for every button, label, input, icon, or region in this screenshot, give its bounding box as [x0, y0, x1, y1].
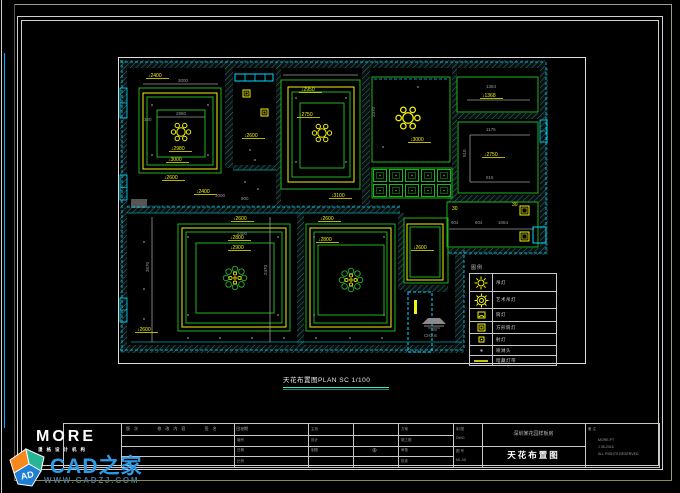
wall-hatch — [455, 113, 548, 119]
wall-hatch — [447, 248, 548, 255]
dim-label: 2980 — [176, 111, 187, 116]
downlight-dot — [395, 190, 397, 192]
legend-row: 吊灯 — [470, 274, 556, 292]
tb-label: 制图 — [311, 448, 318, 453]
dim-label: 1064 — [498, 220, 509, 225]
downlight-dot — [283, 337, 285, 339]
wall-hatch — [297, 213, 304, 345]
ceiling-frame — [447, 202, 538, 247]
legend-row: 筒灯 — [470, 309, 556, 322]
downlight-dot — [443, 190, 445, 192]
ceiling-height-symbol — [420, 316, 448, 332]
wall-hatch — [127, 205, 400, 213]
remark-line: J 08-2016 — [598, 445, 614, 450]
plan-title-underline — [283, 387, 389, 388]
downlight-dot — [383, 236, 385, 238]
ceiling-frame — [410, 227, 440, 277]
tb-label: 设计 — [311, 438, 318, 443]
project-name: 深圳某花园样板房 — [482, 424, 585, 445]
dim-label-vertical: 2470 — [371, 106, 376, 117]
downlight-dot — [315, 337, 317, 339]
tb-stamp-symbol: ⊕ — [372, 448, 377, 456]
spotlight-icon — [470, 334, 493, 345]
ceiling-frame — [457, 77, 538, 112]
downlight-dot — [411, 190, 413, 192]
downlight-dot — [277, 236, 279, 238]
chandelier — [312, 124, 331, 141]
dim-label: 320 — [144, 117, 152, 122]
title-block-divider — [585, 424, 586, 467]
wall-hatch — [398, 213, 404, 290]
wall-hatch — [455, 252, 464, 345]
plan-title-underline2 — [283, 389, 389, 390]
downlight-dot — [207, 104, 209, 106]
downlight-dot — [313, 314, 315, 316]
tb-sheetno-label: 图 号 — [456, 449, 464, 454]
downlight-dot — [381, 337, 383, 339]
lamp-square — [520, 206, 529, 215]
dim-label: 3000 — [178, 78, 189, 83]
downlight-dot — [382, 146, 384, 148]
legend-header: 图例 — [471, 264, 483, 271]
sheet-border-left — [14, 4, 15, 481]
downlight-dot — [219, 337, 221, 339]
downlight-dot — [411, 175, 413, 177]
dim-label: 904 — [451, 220, 459, 225]
legend-row: 艺术吊灯 — [470, 292, 556, 309]
legend-label: 射灯 — [493, 337, 506, 343]
dim-label-vertical: 3670 — [145, 261, 150, 272]
downlight-dot — [295, 97, 297, 99]
flower-chandelier — [339, 268, 363, 292]
downlight-dot — [187, 337, 189, 339]
downlight-dot — [313, 236, 315, 238]
screen-edge-line — [1, 0, 2, 493]
legend-label: 艺术吊灯 — [493, 297, 516, 303]
lamp-square — [522, 208, 527, 213]
title-block-row-line — [121, 456, 453, 457]
remark-line: MORE-PT — [598, 438, 614, 443]
plan-title: 天花布置图PLAN SC 1/100 — [283, 374, 370, 384]
downlight-dot — [249, 149, 251, 151]
art-chandelier-icon — [470, 292, 493, 308]
title-block-row-line — [121, 435, 453, 436]
lamp-square — [245, 92, 248, 95]
downlight-dot — [151, 104, 153, 106]
ceiling-frame — [292, 92, 350, 177]
wall-hatch — [120, 60, 127, 352]
revision-header: 版次 修改内容 签名 日期 — [126, 427, 252, 432]
remark-label: 备 注 — [588, 427, 596, 432]
pendant-lamp-icon — [470, 274, 493, 291]
dim-label: 30 — [452, 206, 458, 212]
sheet-border-right — [671, 4, 672, 481]
tb-label: 批准 — [401, 459, 408, 464]
downlight-dot — [295, 161, 297, 163]
ceiling-frame — [281, 80, 360, 189]
flower-chandelier — [223, 266, 247, 290]
legend-row: 喷淋头 — [470, 346, 556, 356]
ceiling-frame — [318, 245, 384, 315]
dim-label: 3000 — [215, 193, 226, 198]
ceiling-frame — [407, 224, 443, 280]
downlight-dot — [187, 314, 189, 316]
dim-label-vertical: 910 — [462, 149, 467, 157]
wall-hatch — [540, 68, 548, 250]
lamp-square — [520, 232, 529, 241]
ceiling-height-label: CH2.6 — [424, 333, 437, 338]
tb-scale-label: 制 图 — [456, 427, 464, 432]
dim-label: 2400 — [237, 231, 248, 236]
tb-label: 方案 — [401, 427, 408, 432]
downlight-dot — [277, 314, 279, 316]
remark-line: ALL RIGHTS RESERVED — [598, 452, 638, 457]
wall-hatch — [276, 60, 281, 205]
screen-edge-cyan-line — [4, 53, 5, 428]
downlight-dot — [417, 86, 419, 88]
legend-label: 方形筒灯 — [493, 325, 516, 331]
legend-table: 吊灯 艺术吊灯 筒灯 方形筒灯 射灯 — [469, 273, 557, 366]
dim-label: 604 — [475, 220, 483, 225]
wall-hatch — [448, 195, 548, 202]
tb-label: 主持 — [311, 427, 318, 432]
tb-label: 比例 — [237, 459, 244, 464]
downlight-dot — [395, 175, 397, 177]
downlight-dot — [143, 288, 145, 290]
dim-label: 915 — [486, 175, 494, 180]
downlight-dot — [427, 190, 429, 192]
lamp-square — [243, 90, 250, 97]
dim-label: 1364 — [486, 84, 497, 89]
downlight-dot — [143, 241, 145, 243]
sprinkler-icon — [470, 346, 493, 355]
downlight-icon — [470, 309, 493, 321]
downlight-dot — [244, 181, 246, 183]
wall-hatch — [120, 60, 545, 68]
legend-panel: 图例 吊灯 艺术吊灯 筒灯 方形筒灯 — [469, 264, 559, 362]
legend-row: 射灯 — [470, 334, 556, 346]
tb-sheetno-value: ML-06 — [456, 458, 466, 463]
lamp-square — [263, 111, 266, 114]
wall-hatch — [225, 60, 233, 168]
dim-label: 30 — [512, 202, 518, 208]
cad-sheet-page: { "watermark": {"brand": "CAD之家", "url":… — [0, 0, 680, 493]
tb-scale-value: DWG — [456, 436, 465, 441]
downlight-dot — [427, 175, 429, 177]
ceiling-frame — [235, 74, 273, 81]
tb-label: 编号 — [237, 438, 244, 443]
tb-label: 日期 — [237, 448, 244, 453]
dim-label-vertical: 2470 — [263, 264, 268, 275]
downlight-dot — [349, 337, 351, 339]
downlight-dot — [151, 154, 153, 156]
ceiling-frame — [414, 300, 417, 314]
downlight-dot — [254, 159, 256, 161]
downlight-dot — [207, 154, 209, 156]
downlight-dot — [251, 337, 253, 339]
downlight-dot — [345, 97, 347, 99]
chandelier — [396, 107, 420, 129]
title-block: 版次 修改内容 签名 日期 工程 编号 日期 比例 主持 设计 制图 ⊕ 方案 … — [63, 423, 660, 468]
downlight-dot — [187, 236, 189, 238]
wall-hatch — [404, 285, 448, 292]
chandelier — [171, 123, 190, 140]
lamp-square — [261, 109, 268, 116]
wall-hatch — [452, 60, 457, 201]
legend-row: 方形筒灯 — [470, 322, 556, 334]
dim-label: 900 — [241, 196, 249, 201]
tb-label: 审核 — [401, 448, 408, 453]
downlight-dot — [379, 175, 381, 177]
legend-label: 喷淋头 — [493, 348, 511, 354]
ceiling-frame — [314, 232, 387, 323]
watermark-url: WWW.CADZJ.COM — [44, 476, 139, 485]
wall-hatch — [233, 165, 276, 170]
wall-hatch — [362, 60, 370, 205]
wall-hatch — [120, 345, 464, 353]
downlight-dot — [379, 190, 381, 192]
legend-label: 吊灯 — [493, 280, 506, 286]
sheet-border-top — [14, 4, 671, 5]
dim-label: ↓2400 — [148, 73, 162, 79]
tb-label: 施工图 — [401, 438, 412, 443]
downlight-dot — [257, 188, 259, 190]
downlight-dot — [143, 318, 145, 320]
ceiling-frame — [196, 243, 274, 313]
legend-label: 暗藏灯带 — [493, 358, 516, 364]
downlight-dot — [443, 175, 445, 177]
light-strip-icon — [470, 356, 493, 365]
dim-label: 1175 — [486, 127, 496, 132]
downlight-dot — [383, 314, 385, 316]
tb-label: 工程 — [237, 427, 244, 432]
legend-label: 筒灯 — [493, 312, 506, 318]
downlight-dot — [345, 161, 347, 163]
lamp-square — [522, 234, 527, 239]
square-downlight-icon — [470, 322, 493, 333]
legend-row: 暗藏灯带 — [470, 356, 556, 365]
drawing-name: 天花布置图 — [482, 445, 585, 467]
ceiling-frame — [372, 77, 450, 162]
